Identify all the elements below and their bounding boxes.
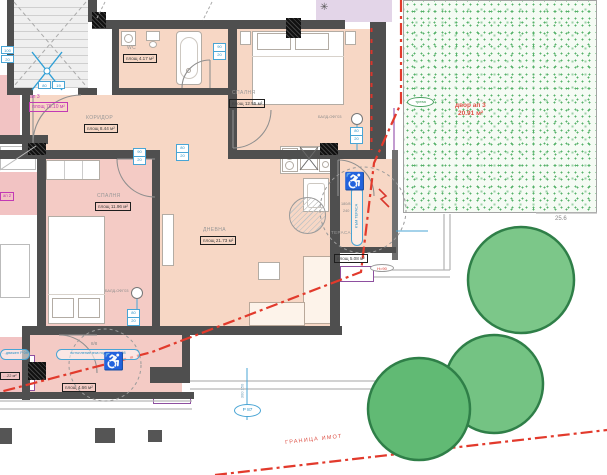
closet-neighbor-2 (0, 244, 30, 298)
room-label-terrace: ТЕРАСА (331, 231, 351, 236)
room-label-bedroom-left: СПАЛНЯ (97, 194, 121, 199)
terrace-dim-a: 180/8 (341, 203, 351, 207)
sink-basin (322, 161, 329, 168)
area-box-wc: площ 4.17 м² (123, 54, 157, 63)
yard-area-label: 20.91 м² (458, 111, 483, 118)
column (28, 362, 46, 380)
code-marker (131, 287, 143, 299)
room-neighbor-corner (0, 337, 22, 392)
room-label-bedroom-top: СПАЛНЯ (232, 91, 256, 96)
wall (92, 20, 345, 29)
to-terrace-pill: КЪМ ТЕРАСА (351, 186, 363, 246)
area-box-bath: площ 4.66 м² (62, 383, 96, 392)
wall-block (148, 430, 162, 442)
room-stairwell (14, 0, 88, 88)
stair-dim: 20 (1, 55, 14, 63)
yard-grass-area (403, 0, 597, 213)
sofa-horizontal (249, 302, 305, 326)
snowflake-icon: ✳ (320, 3, 328, 13)
wall (330, 150, 340, 335)
code-marker (351, 113, 363, 125)
wall (0, 392, 194, 399)
stair-door-tag: 19 (52, 81, 65, 89)
tree (445, 335, 543, 433)
stair-door-tag: 80 (38, 81, 51, 89)
wall (150, 367, 190, 383)
wall (112, 88, 228, 95)
door-size-tag: 9020 (133, 148, 146, 165)
yard-dimension: 25.6 (555, 216, 567, 222)
to-terrace-label: КЪМ ТЕРАСА (353, 204, 360, 228)
apartment-area-box: площ 76.10 м² (29, 102, 68, 112)
column (286, 18, 301, 38)
tree (468, 227, 574, 333)
toilet (146, 31, 160, 41)
nightstand (345, 31, 356, 45)
wheelchair-icon: ♿ (344, 172, 365, 192)
wall (37, 144, 46, 326)
floor-plan-canvas: двор ап 3 20.91 м² трева 25.6 (0, 0, 607, 475)
wall-terrace-right (392, 150, 398, 260)
door-size-tag: 9020 (213, 43, 226, 60)
neighbor-note-pill: …движен Р 09 (0, 349, 30, 360)
wall (370, 22, 386, 152)
side-table (258, 262, 280, 280)
room-label-corridor: КОРИДОР (86, 116, 113, 121)
blanket-line (252, 56, 344, 57)
window-code-top: БАЛД-ОФГ03 (318, 116, 341, 120)
neighbor-apartment-partial: ап 2 (0, 192, 14, 201)
wardrobe (46, 160, 100, 180)
area-box-terrace: площ 5.08 м² (334, 254, 368, 263)
door-size-tag: 8020 (176, 144, 189, 161)
stair-dim: 100 (1, 46, 14, 54)
burner (285, 161, 294, 170)
property-boundary-label: ГРАНИЦА ИМОТ (285, 434, 343, 446)
room-label-wc: WC (127, 46, 136, 51)
area-box-living: площ 21.73 м² (200, 236, 236, 245)
wall (112, 25, 119, 91)
wall-terrace-bottom (330, 247, 396, 253)
wall (228, 150, 386, 159)
yard-label: двор ап 3 (455, 103, 486, 110)
wall-block (95, 428, 115, 443)
area-box-bedroom-top: площ 12.55 м² (229, 99, 265, 108)
dining-table (289, 197, 326, 234)
washer-door (124, 34, 133, 43)
terrace-height-tag: Н=90 (370, 264, 394, 272)
column (320, 143, 338, 155)
window-frame (340, 266, 374, 282)
room-label-living: ДНЕВНА (203, 228, 226, 233)
grass-tag: трева (407, 97, 434, 107)
door-size-tag: 8020 (127, 309, 140, 326)
wall (78, 88, 97, 95)
site-dim-vertical: 300 150 (236, 376, 248, 406)
window-code-bottom: БАЛД-ОФГ03 (105, 290, 128, 294)
wall (152, 150, 160, 335)
bath-dim: 8/8 (91, 342, 97, 347)
area-box-bedroom-left: площ 11.96 м² (95, 202, 131, 211)
neighbor-area-partial: …22 м² (0, 372, 20, 380)
toilet-bowl (149, 41, 157, 48)
trees (368, 227, 574, 460)
accessibility-note-pill: встъпление във подвижен Р 08 (56, 349, 140, 360)
wall-block (0, 428, 12, 444)
column (28, 143, 46, 155)
apartment-tag: ап 3 (30, 95, 40, 100)
sofa-vertical (303, 256, 331, 324)
area-box-corridor: площ 8.44 м² (84, 124, 118, 133)
door-size-tag: 8020 (350, 127, 363, 144)
blanket-line (48, 294, 105, 295)
site-marker-p87: Р 87 (234, 404, 261, 417)
property-boundary-line (215, 430, 607, 475)
column (92, 12, 106, 28)
wall (228, 25, 237, 150)
room-neighbor-sliver2 (0, 95, 20, 135)
tub-drain (186, 68, 191, 73)
pillow (52, 298, 74, 318)
wheelchair-icon: ♿ (103, 352, 124, 372)
pillow (78, 298, 100, 318)
cabinet-living (162, 214, 174, 266)
nightstand (240, 31, 251, 45)
terrace-dim-b: 240 (343, 210, 349, 214)
tree (368, 358, 470, 460)
